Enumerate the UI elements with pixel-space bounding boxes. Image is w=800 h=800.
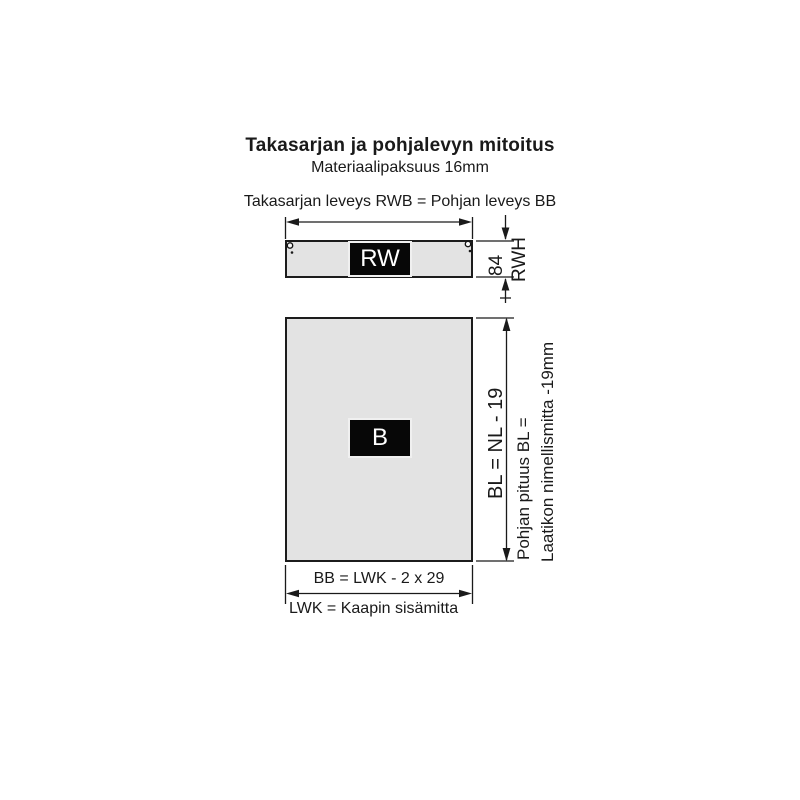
diagram-canvas: Takasarjan ja pohjalevyn mitoitus Materi… <box>0 0 800 800</box>
panel-label-box: B <box>350 420 410 456</box>
material-thickness-subtitle: Materiaalipaksuus 16mm <box>0 159 800 177</box>
lwk-note: LWK = Kaapin sisämitta <box>289 600 458 618</box>
arrow-right-icon <box>459 590 472 598</box>
panel-length-note-line2: Laatikon nimellismitta -19mm <box>539 342 558 562</box>
arrow-right-icon <box>459 218 472 226</box>
panel-length-note-line1: Pohjan pituus BL = <box>515 417 534 560</box>
panel-length-equation: BL = NL - 19 <box>485 388 507 499</box>
arrow-up-icon <box>503 318 511 332</box>
rwb-equation-caption: Takasarjan leveys RWB = Pohjan leveys BB <box>0 193 800 211</box>
rail-height-value: 84 <box>487 255 508 276</box>
arrow-left-icon <box>286 590 299 598</box>
rail-label: RW <box>360 247 400 271</box>
panel-width-equation: BB = LWK - 2 x 29 <box>285 570 473 588</box>
arrow-down-icon <box>503 548 511 562</box>
rail-height-code: RWH <box>510 237 531 282</box>
panel-label: B <box>372 426 388 450</box>
rail-label-box: RW <box>350 243 410 275</box>
top-width-dimension <box>286 217 473 239</box>
arrow-left-icon <box>286 218 299 226</box>
page-title: Takasarjan ja pohjalevyn mitoitus <box>0 135 800 157</box>
